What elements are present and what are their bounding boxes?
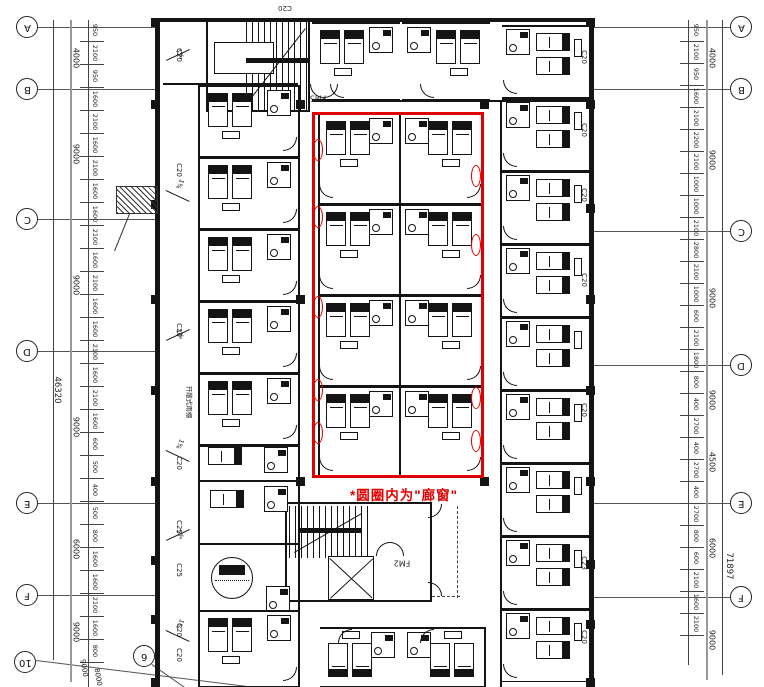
- floor-plan: ABCDEFABCDEF1064632071897400090009000900…: [0, 0, 764, 687]
- red-annotation-note: *圆圈内为"廊窗": [318, 484, 490, 504]
- red-highlight-box: [312, 112, 484, 478]
- corridor-window-marker: [313, 422, 323, 444]
- corridor-window-marker: [313, 296, 323, 318]
- corridor-window-marker: [313, 206, 323, 228]
- corridor-window-marker: [313, 139, 323, 161]
- red-highlight-layer: [0, 0, 764, 687]
- corridor-window-marker: [313, 379, 323, 401]
- corridor-window-marker: [471, 234, 481, 256]
- corridor-window-marker: [471, 430, 481, 452]
- corridor-window-marker: [471, 387, 481, 409]
- corridor-window-marker: [471, 165, 481, 187]
